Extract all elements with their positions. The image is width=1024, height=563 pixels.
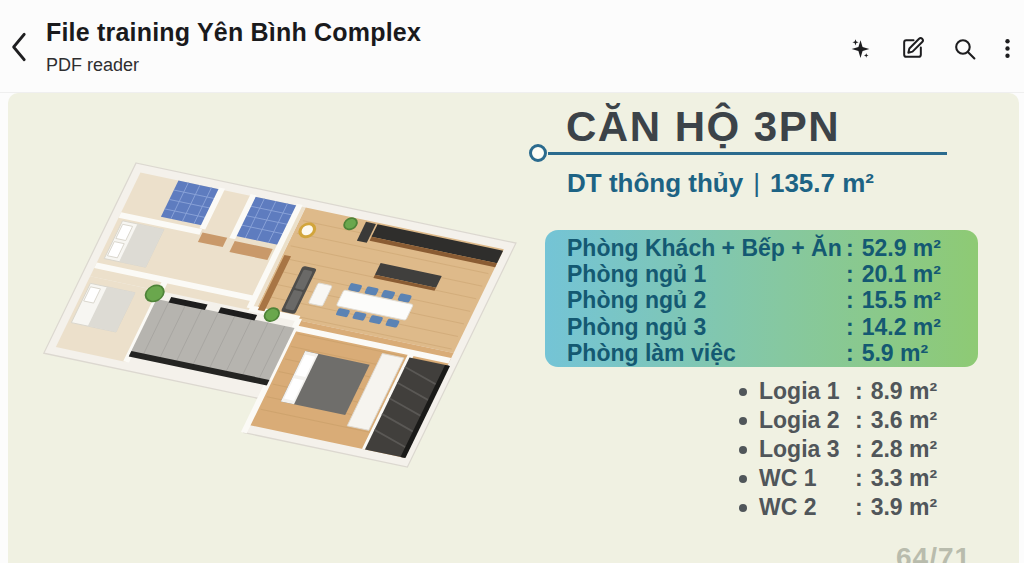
- room-value: 5.9 m²: [862, 340, 928, 367]
- extra-label: Logia 3: [759, 436, 855, 463]
- extra-value: 2.8 m²: [871, 436, 937, 463]
- room-value: 20.1 m²: [862, 261, 941, 288]
- underline-circle-decor: [529, 144, 547, 162]
- more-options-button[interactable]: [990, 28, 1024, 68]
- extra-label: WC 2: [759, 494, 855, 521]
- room-label: Phòng ngủ 1: [567, 261, 846, 288]
- extra-value: 8.9 m²: [871, 378, 937, 405]
- pdf-page[interactable]: CĂN HỘ 3PN DT thông thủy|135.7 m² Phòng …: [8, 93, 1019, 563]
- pdf-reader-app: File training Yên Bình Complex PDF reade…: [0, 0, 1024, 563]
- extra-row: WC 2 :3.9 m²: [739, 493, 959, 522]
- extra-value: 3.9 m²: [871, 494, 937, 521]
- area-summary: DT thông thủy|135.7 m²: [567, 168, 874, 199]
- app-title: File training Yên Bình Complex: [46, 18, 421, 47]
- bullet-icon: [739, 475, 747, 483]
- ai-sparkle-button[interactable]: [834, 28, 886, 68]
- extra-row: Logia 1 :8.9 m²: [739, 377, 959, 406]
- room-label: Phòng Khách + Bếp + Ăn: [567, 235, 846, 262]
- room-label: Phòng ngủ 3: [567, 314, 846, 341]
- ai-sparkle-icon: [848, 36, 873, 61]
- extra-row: Logia 3 :2.8 m²: [739, 435, 959, 464]
- edit-icon: [900, 36, 925, 61]
- app-header: File training Yên Bình Complex PDF reade…: [0, 0, 1024, 93]
- area-label: DT thông thủy: [567, 168, 743, 198]
- room-label: Phòng ngủ 2: [567, 287, 846, 314]
- page-indicator: 64/71: [896, 542, 971, 563]
- title-underline: [529, 143, 949, 163]
- search-icon: [952, 36, 977, 61]
- search-button[interactable]: [938, 28, 990, 68]
- room-value: 52.9 m²: [862, 235, 941, 262]
- room-area-box: Phòng Khách + Bếp + Ăn :52.9 m² Phòng ng…: [545, 230, 978, 367]
- extra-label: Logia 1: [759, 378, 855, 405]
- extra-label: Logia 2: [759, 407, 855, 434]
- bullet-icon: [739, 446, 747, 454]
- kebab-menu-icon: [995, 36, 1020, 61]
- room-label: Phòng làm việc: [567, 340, 846, 367]
- room-row: Phòng làm việc :5.9 m²: [567, 340, 958, 366]
- header-actions: [834, 28, 1024, 68]
- extra-row: WC 1 :3.3 m²: [739, 464, 959, 493]
- app-subtitle: PDF reader: [46, 55, 421, 76]
- room-value: 15.5 m²: [862, 287, 941, 314]
- bullet-icon: [739, 504, 747, 512]
- extras-list: Logia 1 :8.9 m² Logia 2 :3.6 m² Logia 3 …: [739, 377, 959, 522]
- floor-plan-image: [36, 118, 544, 512]
- area-value: 135.7 m²: [770, 168, 874, 198]
- room-row: Phòng ngủ 2 :15.5 m²: [567, 288, 958, 314]
- header-titles: File training Yên Bình Complex PDF reade…: [46, 18, 421, 76]
- extra-label: WC 1: [759, 465, 855, 492]
- extra-value: 3.3 m²: [871, 465, 937, 492]
- area-divider: |: [753, 168, 760, 198]
- room-row: Phòng ngủ 1 :20.1 m²: [567, 261, 958, 287]
- chevron-left-icon: [7, 30, 33, 64]
- room-row: Phòng Khách + Bếp + Ăn :52.9 m²: [567, 235, 958, 261]
- bullet-icon: [739, 417, 747, 425]
- back-button[interactable]: [2, 26, 38, 70]
- bullet-icon: [739, 388, 747, 396]
- extra-row: Logia 2 :3.6 m²: [739, 406, 959, 435]
- extra-value: 3.6 m²: [871, 407, 937, 434]
- room-value: 14.2 m²: [862, 314, 941, 341]
- room-row: Phòng ngủ 3 :14.2 m²: [567, 314, 958, 340]
- edit-button[interactable]: [886, 28, 938, 68]
